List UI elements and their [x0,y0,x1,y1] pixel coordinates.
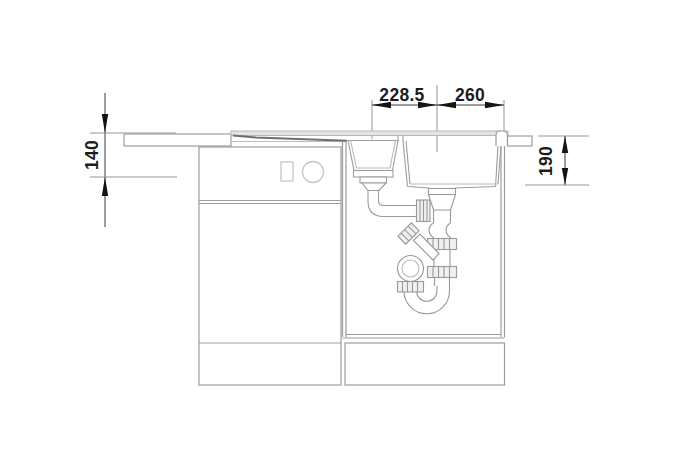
trap-nut-2 [428,267,457,278]
small-bowl [348,141,398,202]
small-bowl-strainer [354,171,394,178]
trap-nut-3 [398,282,424,293]
cabinet-left [199,147,341,385]
dimension-right [525,136,589,185]
dimension-label-260: 260 [441,85,499,105]
technical-drawing-canvas: 228.5 260 140 190 [0,0,700,450]
drain-trap [368,189,457,314]
dimension-label-190: 190 [536,139,556,183]
dimension-left [90,93,177,227]
pipe-nut [417,200,431,222]
countertop-left [124,134,231,146]
trap-body [398,256,424,282]
dimension-label-228-5: 228.5 [372,85,432,105]
dimension-label-140: 140 [82,133,102,177]
drainboard-slope [233,136,347,141]
sink-installation-line-art [0,0,700,450]
countertop-right [508,136,533,146]
rim-right-edge [496,131,508,146]
main-bowl [398,136,501,189]
drawer-front [345,343,505,385]
cabinet-front-symbols [281,162,324,183]
